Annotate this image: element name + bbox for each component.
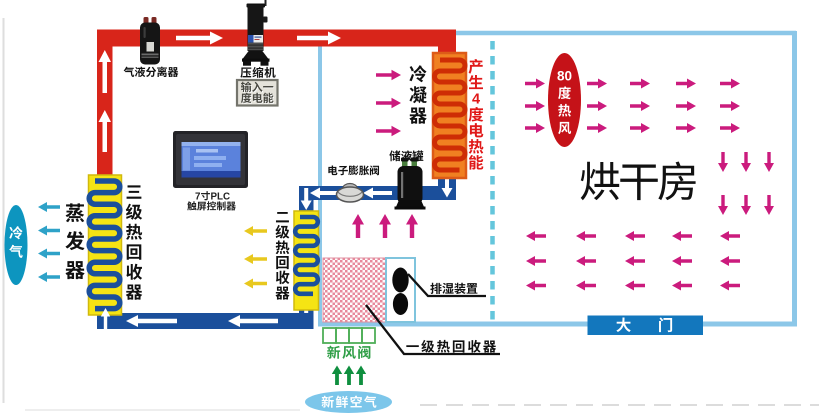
svg-text:PLC: PLC [211,191,231,202]
svg-text:80: 80 [557,69,572,84]
svg-text:7: 7 [195,191,201,202]
svg-text:4: 4 [472,92,480,108]
